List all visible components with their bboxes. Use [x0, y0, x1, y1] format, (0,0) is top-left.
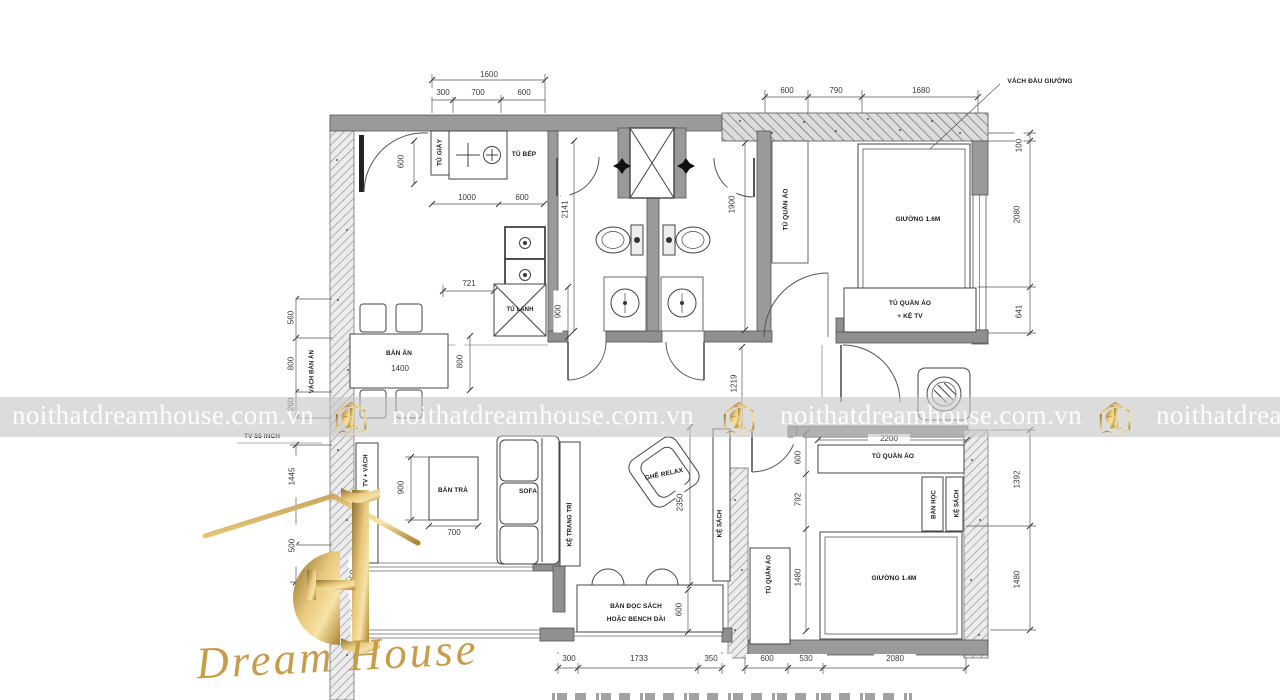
dim-top-a: 300: [424, 88, 462, 97]
dim-2350: 2350: [676, 482, 685, 524]
dim-top-c: 600: [505, 88, 543, 97]
label-shoe-cabinet: TỦ GIÀY: [436, 131, 445, 175]
label-dining-wall: VÁCH BÀN ĂN: [309, 344, 318, 400]
watermark-text: noithatdreamhouse.com.vn: [392, 400, 694, 431]
label-reading-bench-line2: HOẶC BENCH DÀI: [591, 615, 681, 624]
label-wardrobe-tv-shelf-line2: + KỆ TV: [865, 312, 955, 321]
dim-right-1480: 1480: [1013, 559, 1022, 601]
label-wardrobe-bedroom1: TỦ QUẦN ÁO: [782, 180, 791, 240]
label-bookshelf-bedroom2: KỆ SÁCH: [954, 482, 963, 526]
label-wardrobe-tv-shelf-line1: TỦ QUẦN ÁO: [865, 299, 955, 308]
label-bed-16m: GIƯỜNG 1.6M: [878, 215, 958, 224]
dim-bot-600: 600: [746, 654, 788, 663]
dim-kitchen-600w: 600: [501, 193, 543, 202]
label-dining-table: BÀN ĂN: [374, 349, 424, 358]
dim-kitchen-1000: 1000: [446, 193, 488, 202]
watermark-text-partial: noithatdrea: [1156, 400, 1280, 431]
watermark-band: noithatdreamhouse.com.vn noithatdreamhou…: [0, 397, 1280, 437]
watermark-text: noithatdreamhouse.com.vn: [12, 400, 314, 431]
label-fridge: TỦ LẠNH: [498, 306, 542, 315]
dim-tr-b: 790: [817, 86, 855, 95]
label-bookshelf: KỆ SÁCH: [717, 502, 726, 546]
dim-bot-2080: 2080: [874, 654, 916, 663]
dim-bot-530: 530: [785, 654, 827, 663]
dim-bath-2141: 2141: [561, 189, 570, 231]
dim-800-dining: 800: [456, 341, 465, 383]
label-wardrobe-bedroom2-left: TỦ QUẦN ÁO: [766, 547, 775, 603]
dim-top-b: 700: [459, 88, 497, 97]
watermark-logo-icon: [1094, 398, 1138, 436]
dim-right-2080: 2080: [1013, 194, 1022, 236]
dim-b2-792: 792: [794, 479, 803, 521]
label-decor-shelf: KỆ TRANG TRÍ: [567, 495, 576, 555]
label-bed-14m: GIƯỜNG 1.4M: [854, 574, 934, 583]
dim-kitchen-600v: 600: [397, 141, 406, 183]
watermark-logo-icon: [330, 398, 374, 436]
dim-top-total: 1600: [468, 70, 510, 79]
dim-1900: 1900: [728, 184, 737, 226]
dim-bot-1733: 1733: [618, 654, 660, 663]
dim-right-1392: 1392: [1013, 459, 1022, 501]
dim-bot-350: 350: [690, 654, 732, 663]
floor-plan-page: TỦ GIÀY TỦ BẾP TỦ LẠNH BÀN ĂN 1400 VÁCH …: [0, 0, 1280, 700]
label-reading-bench-line1: BÀN ĐỌC SÁCH: [591, 602, 681, 611]
label-kitchen-cabinet: TỦ BẾP: [506, 150, 542, 159]
dim-left-800: 800: [287, 343, 296, 385]
dim-600-bench: 600: [675, 589, 684, 631]
label-desk: BÀN HỌC: [931, 483, 940, 527]
label-wardrobe-bedroom2: TỦ QUẦN ÁO: [853, 452, 933, 461]
label-dining-table-size: 1400: [374, 364, 426, 373]
watermark-text: noithatdreamhouse.com.vn: [780, 400, 1082, 431]
dim-tr-a: 600: [768, 86, 806, 95]
dim-right-641: 641: [1015, 291, 1024, 333]
watermark-logo-icon: [718, 398, 762, 436]
dim-left-560: 560: [287, 297, 296, 339]
dim-b2-600: 600: [794, 437, 803, 479]
dim-b2-1480: 1480: [794, 557, 803, 599]
label-headboard-wall: VÁCH ĐẦU GIƯỜNG: [995, 77, 1085, 86]
cut-off-caption: [552, 693, 912, 700]
dim-721: 721: [448, 279, 490, 288]
dim-right-100: 100: [1015, 125, 1024, 167]
dim-900-fridge: 900: [554, 291, 563, 333]
dim-tr-c: 1680: [900, 86, 942, 95]
